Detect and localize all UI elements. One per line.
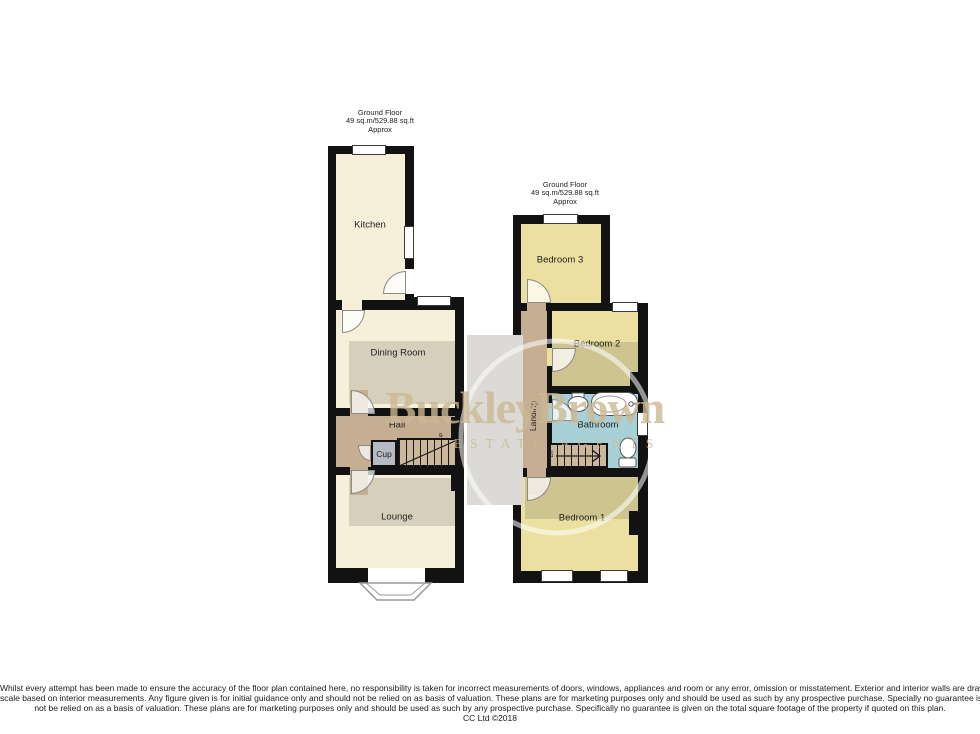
disclaimer-line: scale based on interior measurements. An… [0, 693, 980, 703]
window [404, 226, 414, 259]
room-label-bedroom1: Bedroom 1 [559, 513, 605, 524]
bedroom3-opening [527, 303, 546, 311]
window [612, 302, 638, 312]
room-label-dining: Dining Room [371, 348, 426, 359]
window [541, 570, 573, 582]
window [543, 214, 578, 224]
room-label-kitchen: Kitchen [354, 220, 386, 231]
window [417, 296, 451, 306]
bay-window [360, 583, 431, 600]
floor-approx: Approx [315, 126, 445, 134]
window [352, 145, 386, 155]
chimney-breast [629, 511, 641, 535]
watermark-tagline: ESTATE AGENTS [430, 436, 685, 452]
room-label-bedroom2: Bedroom 2 [574, 339, 620, 350]
watermark-brand: BuckleyBrown [320, 384, 730, 432]
first-floor-header: Ground Floor 49 sq.m/529.88 sq.ft Approx [500, 181, 630, 206]
room-label-bedroom3: Bedroom 3 [537, 255, 583, 266]
disclaimer-line: Whilst every attempt has been made to en… [0, 683, 980, 693]
ground-floor-header: Ground Floor 49 sq.m/529.88 sq.ft Approx [315, 109, 445, 134]
kitchen-dining-opening [342, 300, 362, 310]
disclaimer-copyright: CC Ltd ©2018 [0, 713, 980, 723]
bay-opening [368, 568, 425, 583]
disclaimer-line: not be relied on as a basis of valuation… [0, 703, 980, 713]
window [600, 570, 628, 582]
disclaimer: Whilst every attempt has been made to en… [0, 683, 980, 723]
chimney-breast [451, 468, 464, 491]
floorplan-page: Ground Floor 49 sq.m/529.88 sq.ft Approx… [0, 0, 980, 734]
floor-approx: Approx [500, 198, 630, 206]
room-label-lounge: Lounge [381, 512, 413, 523]
room-label-cup: Cup [376, 449, 392, 459]
